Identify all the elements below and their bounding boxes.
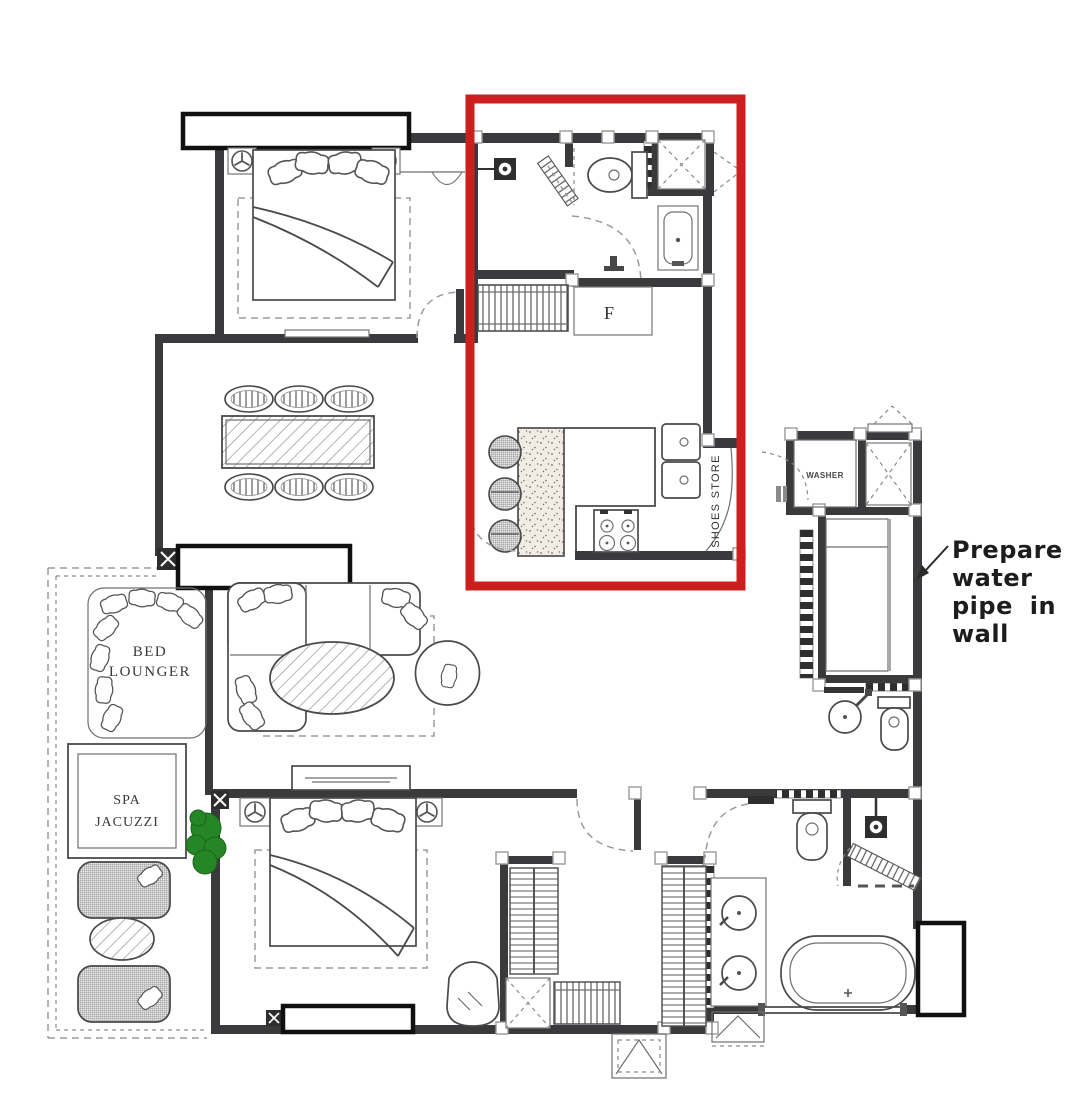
bench bbox=[285, 330, 369, 337]
cabinet bbox=[662, 462, 700, 498]
annotation-line-2: water bbox=[952, 564, 1032, 592]
balcony: BED LOUNGER SPA JACUZZI bbox=[48, 568, 226, 1038]
annotation-line-4: wall bbox=[952, 620, 1009, 648]
kitchen: F SHOES STORE bbox=[468, 285, 808, 556]
bathroom-main bbox=[478, 140, 741, 283]
toilet bbox=[881, 708, 908, 750]
ceiling-fan-icon bbox=[245, 802, 265, 822]
bathroom-master bbox=[705, 796, 964, 1016]
spa-label-1: SPA bbox=[113, 793, 140, 808]
kitchen-island bbox=[518, 428, 564, 556]
sideboard bbox=[178, 546, 350, 588]
living-room bbox=[178, 546, 479, 790]
walk-in-closet bbox=[506, 866, 706, 1028]
bathtub bbox=[781, 936, 915, 1010]
storage-cabinet bbox=[826, 519, 888, 671]
bedroom-chair bbox=[447, 962, 499, 1026]
cabinet bbox=[662, 424, 700, 460]
leader-line bbox=[926, 546, 948, 570]
tv-console bbox=[283, 1006, 413, 1032]
door-swing bbox=[874, 406, 912, 424]
bathroom-small bbox=[824, 687, 910, 750]
door-swing bbox=[572, 216, 641, 283]
wall-light bbox=[432, 172, 462, 185]
side-table bbox=[90, 918, 154, 960]
bedroom-1 bbox=[183, 114, 465, 337]
dining-area bbox=[222, 386, 374, 500]
floor-plan-drawing: BED LOUNGER SPA JACUZZI bbox=[0, 0, 1080, 1109]
bench bbox=[918, 923, 964, 1015]
wardrobe-top bbox=[183, 114, 409, 148]
coffee-table bbox=[270, 642, 394, 714]
floor-plan-page: BED LOUNGER SPA JACUZZI bbox=[0, 0, 1080, 1109]
shelf bbox=[824, 687, 864, 693]
water-pipe-annotation: Prepare water pipe in wall bbox=[916, 536, 1063, 648]
shoes-store-label: SHOES STORE bbox=[710, 454, 722, 548]
ceiling-fan-icon bbox=[417, 802, 437, 822]
annotation-line-3: pipe in bbox=[952, 592, 1056, 620]
annotation-line-1: Prepare bbox=[952, 536, 1063, 564]
door-swings bbox=[417, 292, 458, 338]
bed-lounger-label-2: LOUNGER bbox=[109, 664, 191, 680]
door-swing bbox=[577, 799, 633, 851]
fridge-label: F bbox=[604, 303, 614, 323]
door-swing bbox=[705, 804, 748, 858]
toilet bbox=[797, 813, 827, 860]
door-swing bbox=[417, 292, 458, 338]
shower-door bbox=[847, 844, 921, 891]
washer-label: WASHER bbox=[806, 471, 844, 480]
bed-lounger-label-1: BED bbox=[133, 644, 168, 660]
door-leaf bbox=[748, 796, 774, 804]
dining-table bbox=[222, 416, 374, 468]
laundry-corridor: WASHER bbox=[776, 406, 912, 671]
drawer-unit bbox=[554, 982, 620, 1024]
toilet bbox=[588, 158, 632, 192]
spa-label-2: JACUZZI bbox=[95, 815, 159, 830]
ceiling-fan-icon bbox=[232, 151, 252, 171]
